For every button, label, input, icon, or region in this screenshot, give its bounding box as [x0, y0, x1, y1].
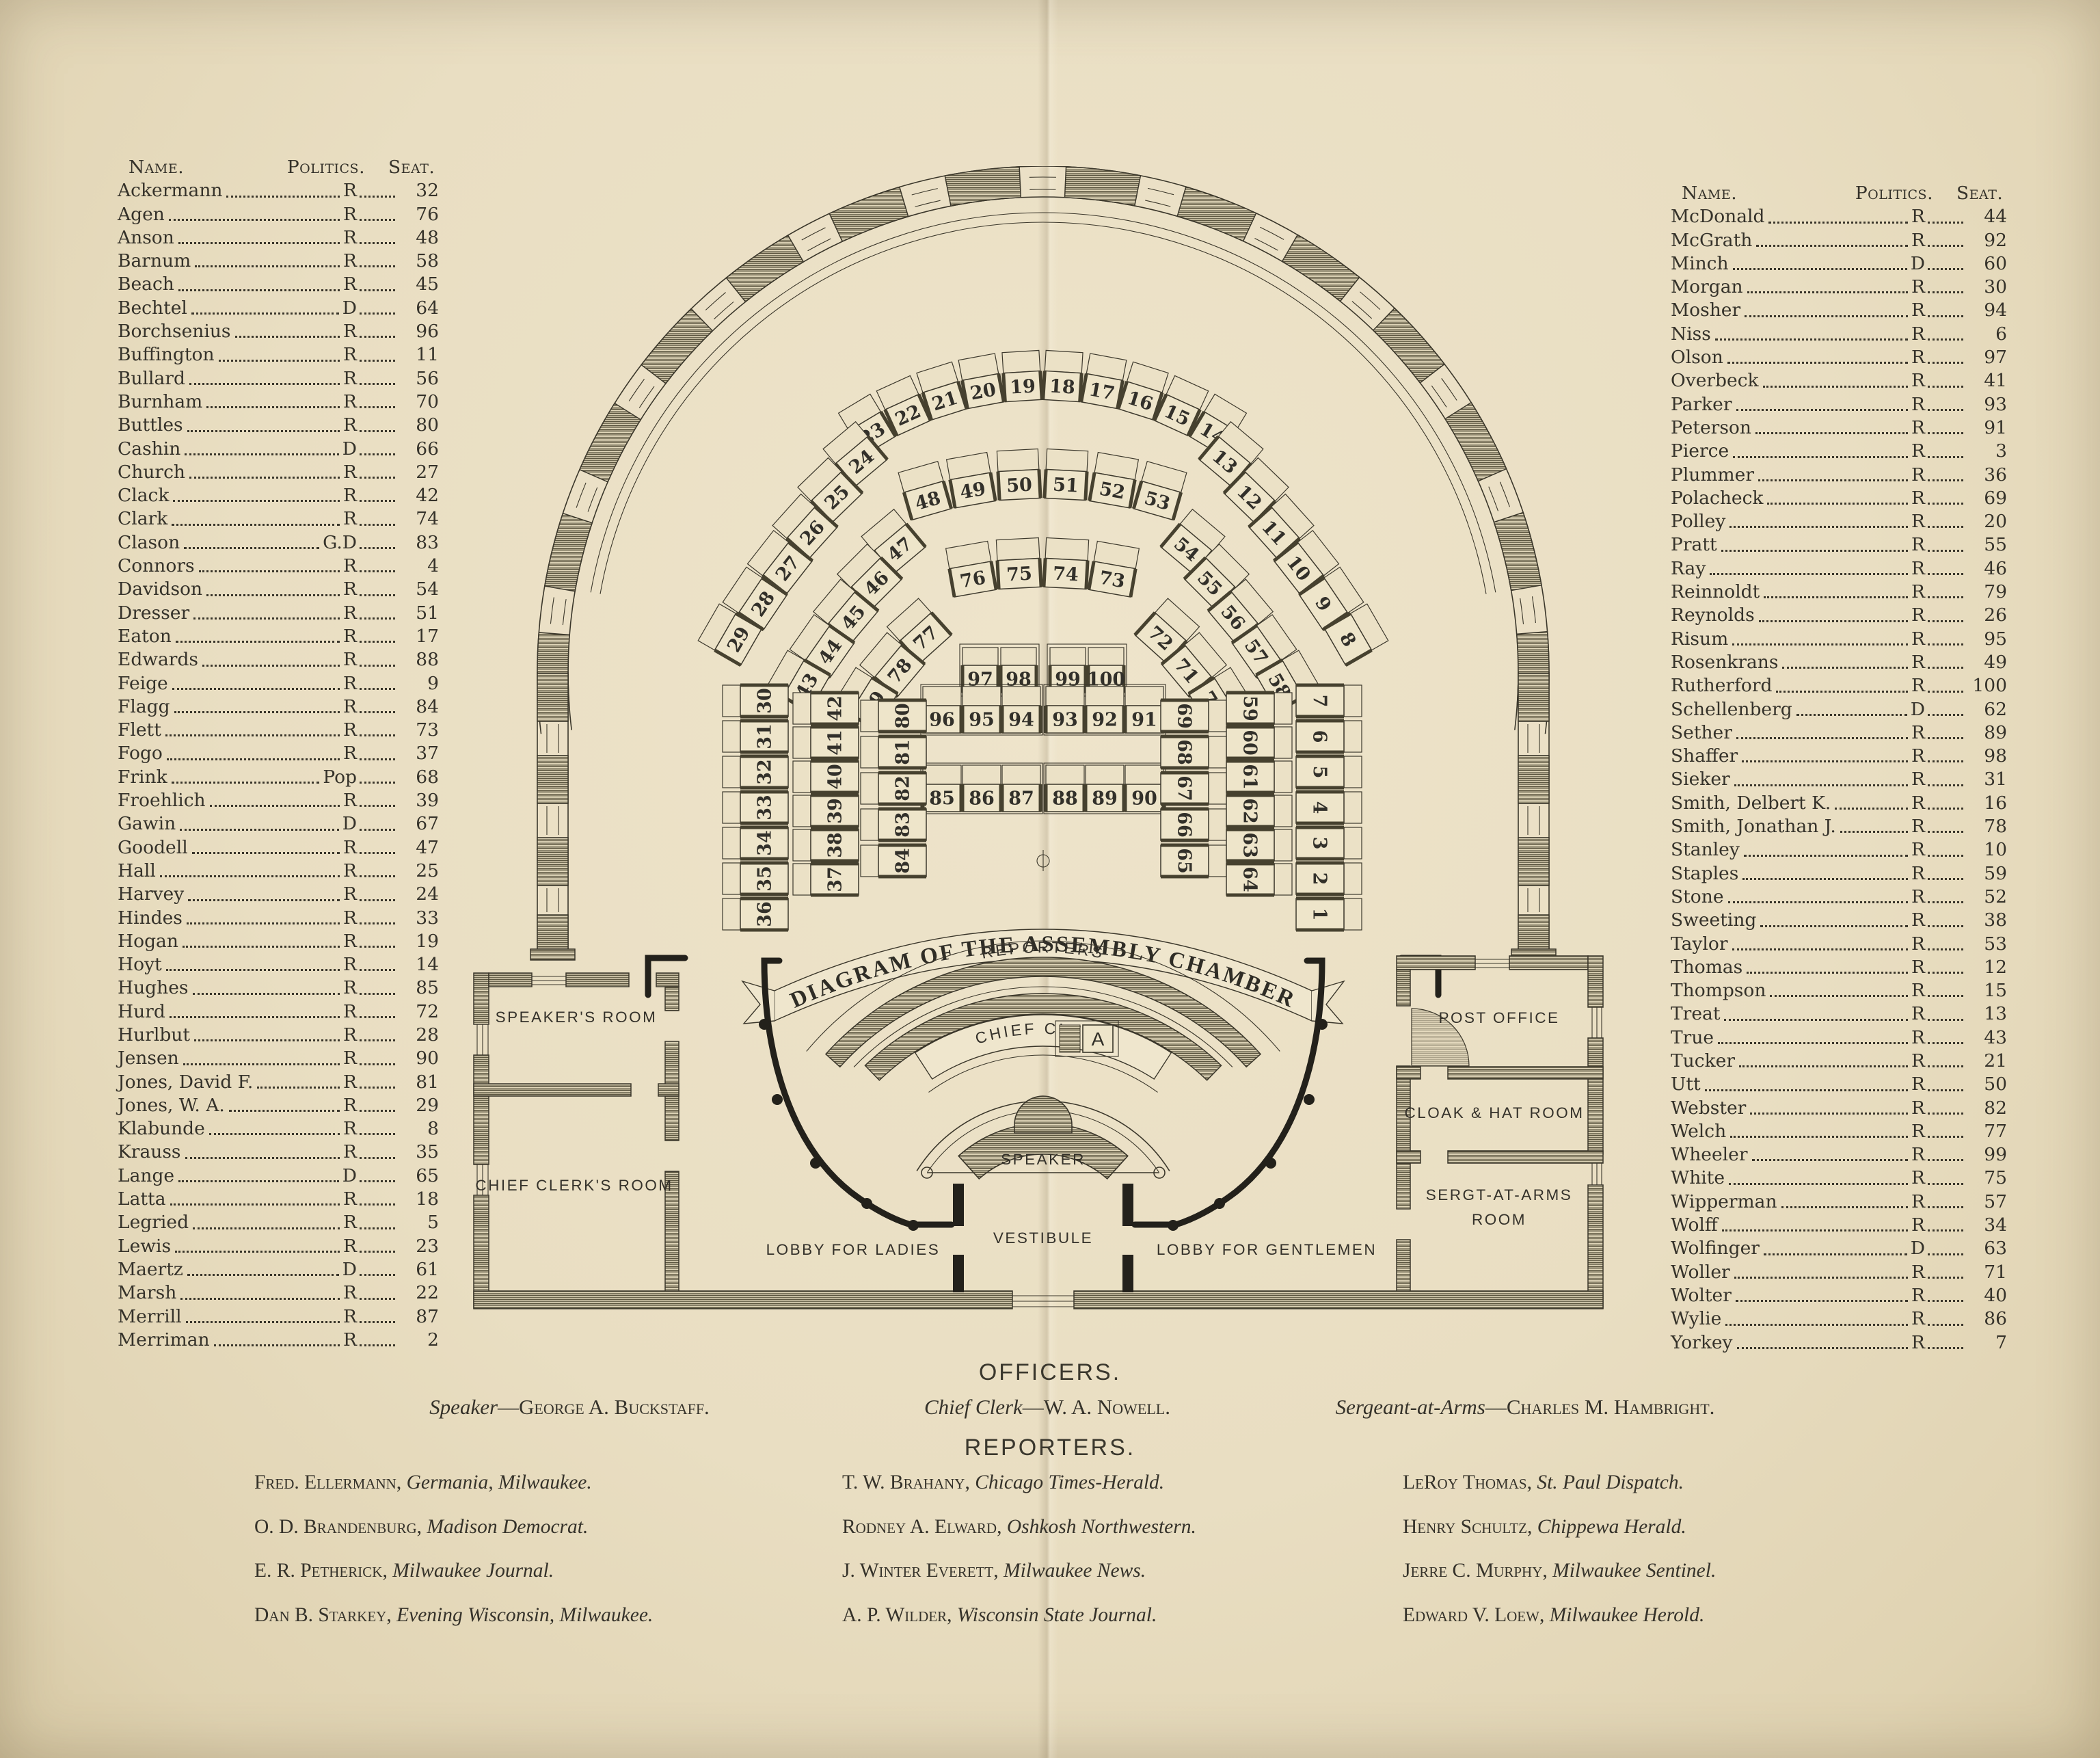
seat-50: 50 [995, 449, 1042, 500]
seat-89: 89 [1084, 765, 1126, 812]
roster-row: WylieR86 [1671, 1307, 2007, 1331]
seat-73: 73 [1087, 541, 1140, 598]
roster-row: WolfingerD63 [1671, 1237, 2007, 1260]
roster-row: SetherR89 [1671, 721, 2007, 745]
roster-row: DavidsonR54 [118, 578, 439, 601]
roster-row: RisumR95 [1671, 628, 2007, 651]
roster-row: HurlbutR28 [118, 1024, 439, 1047]
col-header-seat: Seat. [388, 156, 439, 179]
svg-text:1: 1 [1309, 908, 1330, 921]
roster-row: MaertzD61 [118, 1258, 439, 1281]
svg-text:18: 18 [1049, 375, 1075, 398]
roster-row: BeachR45 [118, 273, 439, 296]
roster-row: SchellenbergD62 [1671, 698, 2007, 721]
svg-text:31: 31 [755, 723, 776, 749]
roster-row: BarnumR58 [118, 250, 439, 273]
seat-68: 68 [1161, 735, 1226, 770]
seat-91: 91 [1124, 687, 1166, 733]
roster-row: WelchR77 [1671, 1120, 2007, 1143]
roster-row: ClackR42 [118, 484, 439, 507]
seat-80: 80 [861, 699, 926, 734]
seat-63: 63 [1226, 828, 1292, 863]
roster-row: StanleyR10 [1671, 838, 2007, 862]
svg-text:64: 64 [1239, 866, 1261, 892]
roster-row: LattaR18 [118, 1188, 439, 1211]
svg-text:93: 93 [1052, 710, 1078, 731]
roster-row: JensenR90 [118, 1047, 439, 1070]
roster-row: SweetingR38 [1671, 909, 2007, 932]
seat-32: 32 [723, 755, 788, 790]
roster-row: TaylorR53 [1671, 933, 2007, 956]
roster-row: McGrathR92 [1671, 229, 2007, 252]
svg-text:38: 38 [825, 832, 846, 858]
roster-row: DresserR51 [118, 602, 439, 625]
seat-64: 64 [1226, 862, 1292, 897]
svg-text:32: 32 [755, 759, 776, 785]
roster-row: FlaggR84 [118, 695, 439, 719]
seat-51: 51 [1042, 449, 1090, 500]
roster-row: GawinD67 [118, 812, 439, 836]
label-sergt-at-arms-room-2: ROOM [1472, 1211, 1526, 1228]
roster-row: TuckerR21 [1671, 1050, 2007, 1073]
seat-30: 30 [723, 684, 788, 719]
roster-row: WhiteR75 [1671, 1167, 2007, 1190]
roster-row: ButtlesR80 [118, 414, 439, 437]
col-header-name: Name. [129, 156, 184, 179]
svg-text:94: 94 [1008, 710, 1034, 731]
seat-2: 2 [1296, 862, 1362, 896]
seat-4: 4 [1296, 790, 1362, 825]
svg-text:2: 2 [1309, 873, 1330, 885]
svg-text:SPEAKER: SPEAKER [1001, 1151, 1086, 1168]
roster-row: MerrimanR2 [118, 1329, 439, 1352]
seat-1: 1 [1296, 897, 1362, 932]
label-chief-clerks-room: CHIEF CLERK'S ROOM [475, 1177, 673, 1194]
svg-text:5: 5 [1309, 766, 1330, 779]
seat-84: 84 [861, 844, 926, 879]
roster-row: PierceR3 [1671, 440, 2007, 463]
reporter-entry: Dan B. Starkey, Evening Wisconsin, Milwa… [254, 1604, 653, 1649]
seat-7: 7 [1296, 684, 1362, 719]
col-header-politics: Politics. [287, 156, 365, 179]
seat-97: 97 [961, 648, 1000, 693]
svg-text:36: 36 [755, 901, 776, 927]
roster-left-header: Name. Politics. Seat. [118, 156, 439, 179]
seat-92: 92 [1084, 687, 1126, 733]
roster-row: McDonaldR44 [1671, 205, 2007, 228]
svg-text:68: 68 [1174, 739, 1195, 765]
seat-36: 36 [723, 897, 788, 932]
roster-row: MosherR94 [1671, 299, 2007, 322]
roster-row: ReynoldsR26 [1671, 604, 2007, 627]
roster-row: StoneR52 [1671, 885, 2007, 909]
svg-text:69: 69 [1174, 703, 1195, 729]
roster-row: Jones, W. A.R29 [118, 1094, 439, 1117]
roster-row: HurdR72 [118, 1000, 439, 1024]
roster-row: KraussR35 [118, 1141, 439, 1164]
reporters-column: Fred. Ellermann, Germania, Milwaukee.O. … [254, 1471, 653, 1648]
roster-row: PlummerR36 [1671, 464, 2007, 487]
seat-93: 93 [1045, 687, 1086, 733]
reporter-entry: T. W. Brahany, Chicago Times-Herald. [842, 1471, 1196, 1516]
roster-row: AgenR76 [118, 203, 439, 226]
roster-row: FroehlichR39 [118, 789, 439, 812]
svg-text:51: 51 [1052, 475, 1079, 497]
seat-18: 18 [1041, 350, 1084, 401]
roster-right: Name. Politics. Seat. McDonaldR44McGrath… [1671, 182, 2007, 1355]
label-post-office: POST OFFICE [1438, 1009, 1559, 1026]
svg-text:42: 42 [825, 695, 846, 721]
label-sergt-at-arms-room: SERGT-AT-ARMS [1426, 1186, 1573, 1203]
svg-text:88: 88 [1052, 788, 1078, 810]
svg-text:35: 35 [755, 866, 776, 892]
seat-95: 95 [961, 687, 1003, 733]
roster-row: FogoR37 [118, 742, 439, 765]
roster-row: WippermanR57 [1671, 1190, 2007, 1214]
svg-text:87: 87 [1008, 788, 1034, 810]
svg-text:92: 92 [1092, 710, 1118, 731]
label-vestibule: VESTIBULE [993, 1229, 1093, 1247]
seat-86: 86 [961, 765, 1003, 812]
svg-text:66: 66 [1174, 812, 1195, 838]
roster-row: PolacheckR69 [1671, 487, 2007, 510]
seat-88: 88 [1045, 765, 1086, 812]
svg-text:50: 50 [1006, 475, 1032, 497]
seat-52: 52 [1088, 452, 1140, 508]
seat-6: 6 [1296, 719, 1362, 754]
reporters-heading: REPORTERS. [0, 1435, 2100, 1461]
roster-row: OlsonR97 [1671, 346, 2007, 369]
roster-row: HughesR85 [118, 976, 439, 1000]
svg-text:6: 6 [1309, 730, 1330, 743]
svg-text:81: 81 [893, 739, 914, 765]
svg-text:A: A [1092, 1028, 1105, 1050]
seat-83: 83 [861, 808, 926, 842]
seat-42: 42 [793, 691, 859, 726]
seat-85: 85 [921, 765, 963, 812]
reporter-entry: LeRoy Thomas, St. Paul Dispatch. [1403, 1471, 1716, 1516]
roster-row: GoodellR47 [118, 836, 439, 860]
seat-3: 3 [1296, 826, 1362, 861]
svg-text:39: 39 [825, 798, 846, 824]
roster-row: ChurchR27 [118, 461, 439, 484]
svg-text:74: 74 [1052, 563, 1079, 586]
seat-69: 69 [1161, 699, 1226, 734]
label-lobby-for-ladies: LOBBY FOR LADIES [766, 1241, 941, 1258]
reporter-entry: Jerre C. Murphy, Milwaukee Sentinel. [1403, 1560, 1716, 1604]
seat-90: 90 [1124, 765, 1166, 812]
reporter-entry: E. R. Petherick, Milwaukee Journal. [254, 1560, 653, 1604]
svg-text:61: 61 [1239, 764, 1261, 790]
roster-row: StaplesR59 [1671, 862, 2007, 885]
roster-row: PrattR55 [1671, 533, 2007, 557]
scanned-page: { "colors": {"paper":"#e9dfc4","ink":"#3… [0, 0, 2100, 1758]
svg-text:67: 67 [1174, 775, 1195, 801]
roster-row: RutherfordR100 [1671, 674, 2007, 697]
roster-row: EatonR17 [118, 625, 439, 648]
roster-row: Smith, Delbert K.R16 [1671, 792, 2007, 815]
roster-row: SiekerR31 [1671, 768, 2007, 791]
seat-39: 39 [793, 794, 859, 829]
roster-row: LangeD65 [118, 1164, 439, 1188]
seat-40: 40 [793, 760, 859, 795]
roster-row: HarveyR24 [118, 883, 439, 906]
svg-text:49: 49 [958, 478, 987, 503]
roster-row: LewisR23 [118, 1235, 439, 1258]
roster-row: TrueR43 [1671, 1026, 2007, 1050]
reporter-entry: Rodney A. Elward, Oshkosh Northwestern. [842, 1516, 1196, 1560]
reporters-column: LeRoy Thomas, St. Paul Dispatch.Henry Sc… [1403, 1471, 1716, 1648]
seat-96: 96 [921, 687, 963, 733]
seat-76: 76 [944, 541, 997, 598]
reporter-entry: Henry Schultz, Chippewa Herald. [1403, 1516, 1716, 1560]
seat-5: 5 [1296, 755, 1362, 790]
svg-text:7: 7 [1309, 695, 1330, 708]
roster-row: BuffingtonR11 [118, 343, 439, 367]
roster-row: ThomasR12 [1671, 956, 2007, 979]
roster-row: RayR46 [1671, 557, 2007, 581]
roster-row: ClarkR74 [118, 507, 439, 531]
col-header-seat: Seat. [1956, 182, 2007, 205]
svg-text:33: 33 [755, 795, 776, 821]
seat-31: 31 [723, 719, 788, 754]
svg-text:73: 73 [1098, 567, 1127, 592]
col-header-name: Name. [1682, 182, 1737, 205]
reporter-entry: Fred. Ellermann, Germania, Milwaukee. [254, 1471, 653, 1516]
svg-text:40: 40 [825, 764, 846, 790]
svg-text:80: 80 [893, 703, 914, 729]
svg-text:83: 83 [893, 812, 914, 838]
roster-left: Name. Politics. Seat. AckermannR32AgenR7… [118, 156, 439, 1352]
roster-row: HallR25 [118, 860, 439, 883]
roster-row: WolffR34 [1671, 1214, 2007, 1237]
svg-text:63: 63 [1239, 832, 1261, 858]
officer-entry: Speaker—George A. Buckstaff. [429, 1395, 710, 1420]
roster-row: MorganR30 [1671, 276, 2007, 299]
roster-right-rows: McDonaldR44McGrathR92MinchD60MorganR30Mo… [1671, 205, 2007, 1355]
roster-row: NissR6 [1671, 323, 2007, 346]
roster-row: WollerR71 [1671, 1261, 2007, 1284]
seat-59: 59 [1226, 691, 1292, 726]
roster-row: YorkeyR7 [1671, 1331, 2007, 1355]
roster-row: LegriedR5 [118, 1211, 439, 1234]
roster-row: BurnhamR70 [118, 390, 439, 414]
svg-text:91: 91 [1131, 710, 1157, 731]
roster-row: ParkerR93 [1671, 393, 2007, 416]
seat-74: 74 [1042, 537, 1090, 589]
roster-row: ReinnoldtR79 [1671, 581, 2007, 604]
roster-row: AckermannR32 [118, 179, 439, 202]
label-cloak-hat-room: CLOAK & HAT ROOM [1405, 1104, 1585, 1121]
col-header-politics: Politics. [1855, 182, 1933, 205]
seat-33: 33 [723, 790, 788, 825]
svg-text:65: 65 [1174, 848, 1195, 874]
seat-66: 66 [1161, 808, 1226, 842]
roster-row: WebsterR82 [1671, 1097, 2007, 1120]
officer-entry: Sergeant-at-Arms—Charles M. Hambright. [1336, 1395, 1715, 1420]
label-speakers-room: SPEAKER'S ROOM [496, 1009, 658, 1026]
seat-48: 48 [897, 461, 953, 520]
roster-row: UttR50 [1671, 1073, 2007, 1096]
roster-row: BorchseniusR96 [118, 320, 439, 343]
svg-text:37: 37 [825, 866, 846, 892]
reporter-entry: J. Winter Everett, Milwaukee News. [842, 1560, 1196, 1604]
assembly-chamber-diagram: 2322212019181716151448495051525376757473… [470, 166, 1605, 1346]
roster-row: FlettR73 [118, 719, 439, 742]
seat-87: 87 [1001, 765, 1042, 812]
seat-19: 19 [1000, 350, 1043, 401]
roster-left-rows: AckermannR32AgenR76AnsonR48BarnumR58Beac… [118, 179, 439, 1352]
roster-row: WheelerR99 [1671, 1143, 2007, 1167]
roster-row: FeigeR9 [118, 672, 439, 695]
seat-53: 53 [1132, 461, 1188, 520]
roster-row: CashinD66 [118, 438, 439, 461]
seat-37: 37 [793, 862, 859, 897]
seat-81: 81 [861, 735, 926, 770]
svg-text:86: 86 [969, 788, 995, 810]
roster-row: EdwardsR88 [118, 648, 439, 671]
roster-row: ConnorsR4 [118, 555, 439, 578]
seat-35: 35 [723, 862, 788, 896]
svg-text:82: 82 [893, 775, 914, 801]
reporter-entry: Edward V. Loew, Milwaukee Herold. [1403, 1604, 1716, 1649]
seat-60: 60 [1226, 725, 1292, 760]
svg-text:96: 96 [929, 710, 955, 731]
officers-heading: OFFICERS. [0, 1359, 2100, 1386]
svg-text:76: 76 [958, 567, 987, 592]
svg-text:52: 52 [1098, 478, 1127, 503]
svg-text:41: 41 [825, 730, 846, 756]
roster-row: ShafferR98 [1671, 745, 2007, 768]
reporter-entry: A. P. Wilder, Wisconsin State Journal. [842, 1604, 1196, 1649]
roster-row: RosenkransR49 [1671, 651, 2007, 674]
roster-row: Jones, David F.R81 [118, 1071, 439, 1094]
roster-row: TreatR13 [1671, 1002, 2007, 1026]
label-lobby-for-gentlemen: LOBBY FOR GENTLEMEN [1157, 1241, 1377, 1258]
seat-75: 75 [995, 537, 1043, 589]
roster-row: PetersonR91 [1671, 416, 2007, 440]
svg-text:62: 62 [1239, 798, 1261, 824]
roster-row: PolleyR20 [1671, 510, 2007, 533]
roster-row: WolterR40 [1671, 1284, 2007, 1307]
svg-text:85: 85 [929, 788, 955, 810]
reporters-column: T. W. Brahany, Chicago Times-Herald.Rodn… [842, 1471, 1196, 1648]
seat-99: 99 [1049, 648, 1088, 693]
roster-row: FrinkPop68 [118, 766, 439, 789]
roster-row: ClasonG.D83 [118, 531, 439, 555]
seat-98: 98 [999, 648, 1038, 693]
roster-row: HoytR14 [118, 953, 439, 976]
seat-41: 41 [793, 725, 859, 760]
roster-row: ThompsonR15 [1671, 979, 2007, 1002]
reporter-entry: O. D. Brandenburg, Madison Democrat. [254, 1516, 653, 1560]
officer-entry: Chief Clerk—W. A. Nowell. [924, 1395, 1170, 1420]
seat-62: 62 [1226, 794, 1292, 829]
seat-100: 100 [1087, 648, 1126, 693]
svg-text:3: 3 [1309, 837, 1330, 850]
roster-row: MarshR22 [118, 1281, 439, 1305]
seat-38: 38 [793, 828, 859, 863]
svg-text:19: 19 [1009, 375, 1036, 398]
roster-row: OverbeckR41 [1671, 369, 2007, 392]
svg-text:30: 30 [755, 688, 776, 714]
roster-row: BullardR56 [118, 367, 439, 390]
seat-65: 65 [1161, 844, 1226, 879]
svg-text:90: 90 [1131, 788, 1157, 810]
seat-49: 49 [945, 452, 997, 508]
svg-text:4: 4 [1309, 801, 1330, 814]
svg-text:89: 89 [1092, 788, 1118, 810]
roster-row: HoganR19 [118, 930, 439, 953]
svg-text:34: 34 [755, 830, 776, 856]
seat-82: 82 [861, 771, 926, 806]
seat-94: 94 [1001, 687, 1042, 733]
roster-right-header: Name. Politics. Seat. [1671, 182, 2007, 205]
roster-row: AnsonR48 [118, 226, 439, 250]
roster-row: MerrillR87 [118, 1305, 439, 1329]
seat-61: 61 [1226, 760, 1292, 795]
svg-text:60: 60 [1239, 730, 1261, 756]
svg-text:84: 84 [893, 848, 914, 874]
seat-34: 34 [723, 826, 788, 861]
svg-text:95: 95 [969, 710, 995, 731]
roster-row: Smith, Jonathan J.R78 [1671, 815, 2007, 838]
roster-row: BechtelD64 [118, 297, 439, 320]
svg-text:75: 75 [1006, 563, 1032, 586]
roster-row: MinchD60 [1671, 252, 2007, 276]
seat-67: 67 [1161, 771, 1226, 806]
svg-text:59: 59 [1239, 695, 1261, 721]
roster-row: HindesR33 [118, 907, 439, 930]
roster-row: KlabundeR8 [118, 1117, 439, 1141]
